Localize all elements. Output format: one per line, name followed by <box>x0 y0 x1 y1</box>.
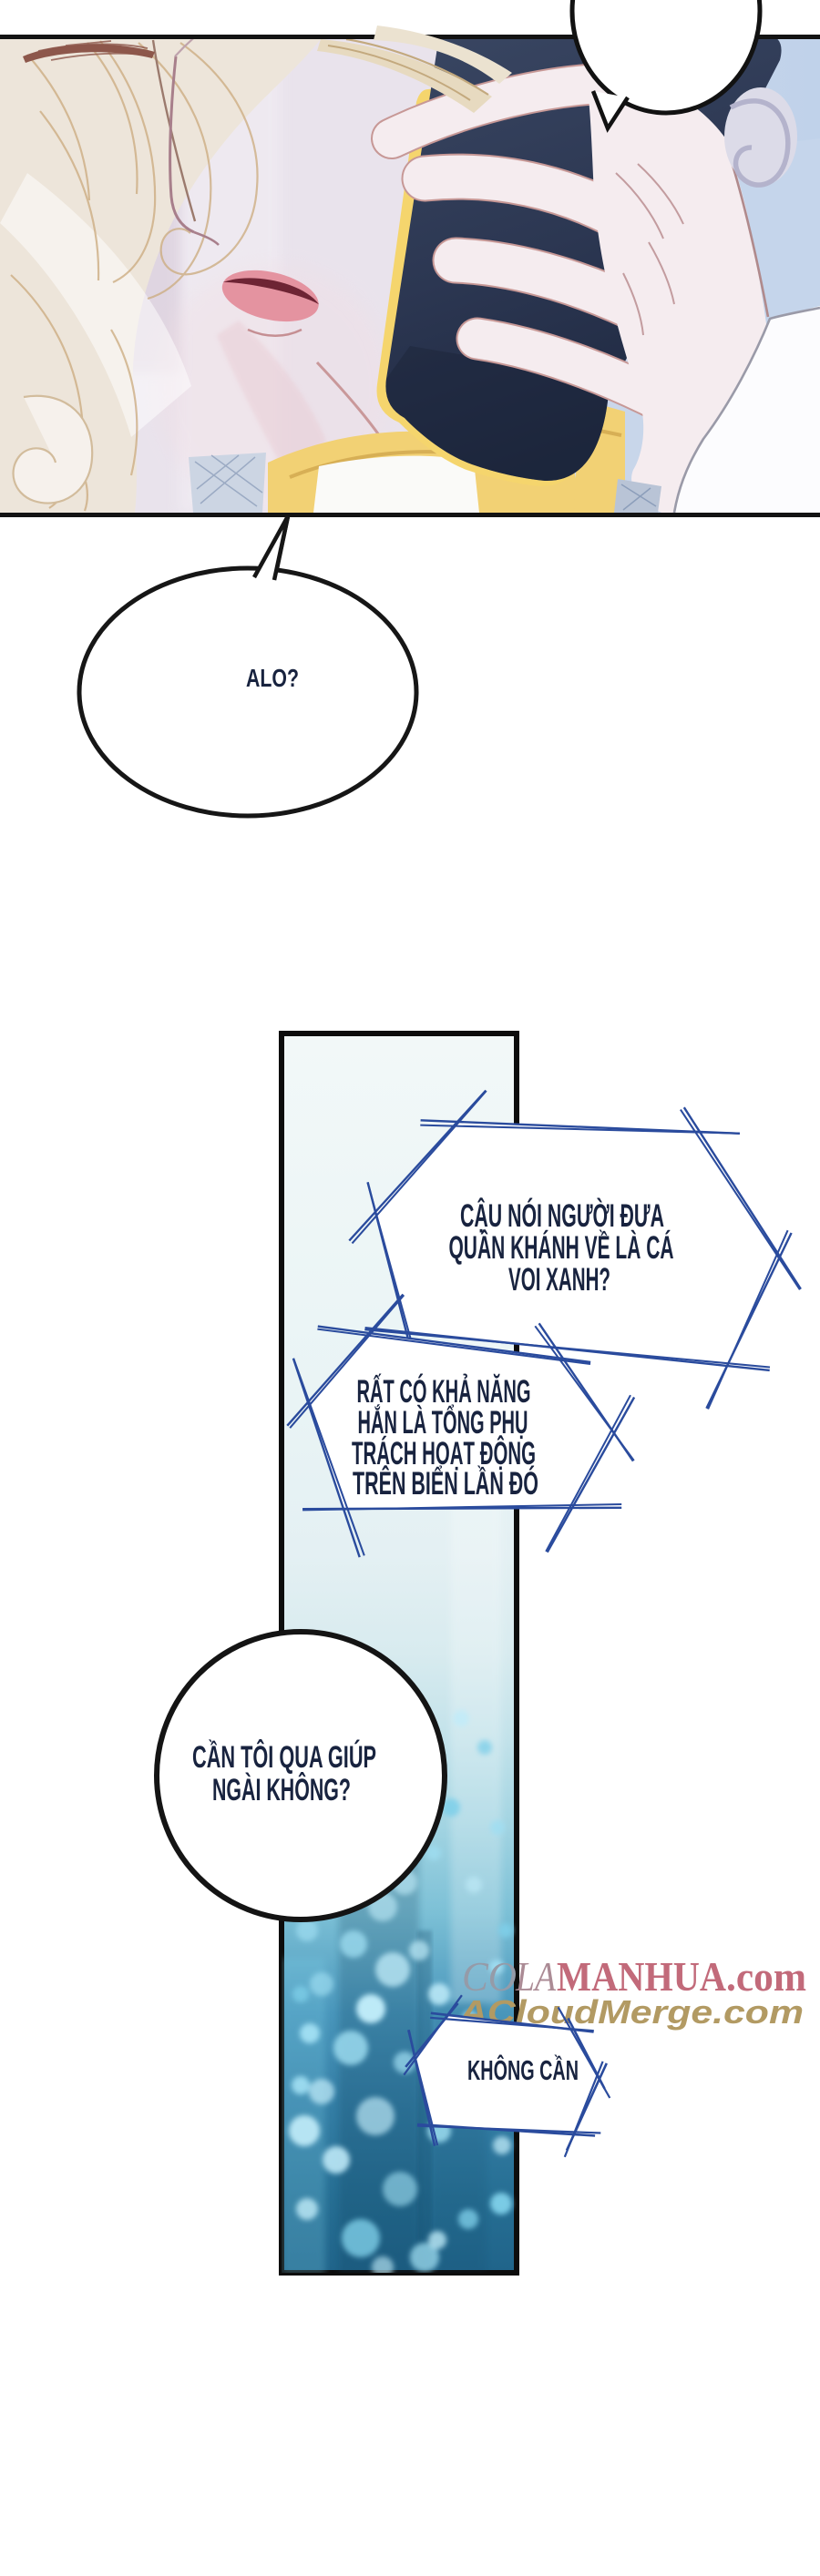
svg-text:ALO?: ALO? <box>246 664 299 692</box>
svg-text:TRÊN BIỂN LẦN ĐÓ: TRÊN BIỂN LẦN ĐÓ <box>353 1465 538 1502</box>
svg-text:NGÀI KHÔNG?: NGÀI KHÔNG? <box>212 1772 351 1807</box>
svg-text:CẬU NÓI NGƯỜI ĐƯA: CẬU NÓI NGƯỜI ĐƯA <box>460 1197 664 1234</box>
svg-text:QUÂN KHÁNH VỀ LÀ CÁ: QUÂN KHÁNH VỀ LÀ CÁ <box>449 1229 674 1266</box>
svg-text:VOI XANH?: VOI XANH? <box>508 1262 610 1298</box>
svg-text:CẦN TÔI QUA GIÚP: CẦN TÔI QUA GIÚP <box>192 1739 376 1775</box>
svg-text:RẤT CÓ KHẢ NĂNG: RẤT CÓ KHẢ NĂNG <box>357 1373 531 1410</box>
svg-text:HẮN LÀ TỔNG PHỤ: HẮN LÀ TỔNG PHỤ <box>358 1404 528 1441</box>
svg-text:KHÔNG CẦN: KHÔNG CẦN <box>467 2053 579 2086</box>
